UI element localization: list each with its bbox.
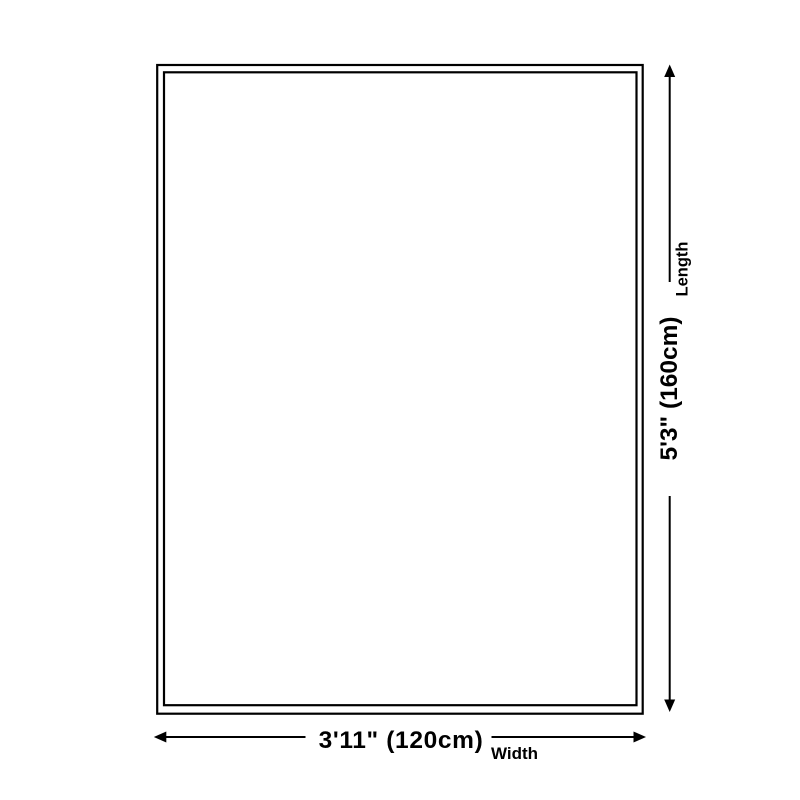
svg-text:Length: Length <box>674 242 692 297</box>
svg-text:5'3" (160cm): 5'3" (160cm) <box>656 316 683 460</box>
svg-text:3'11" (120cm): 3'11" (120cm) <box>319 727 484 754</box>
svg-text:Width: Width <box>491 744 538 763</box>
